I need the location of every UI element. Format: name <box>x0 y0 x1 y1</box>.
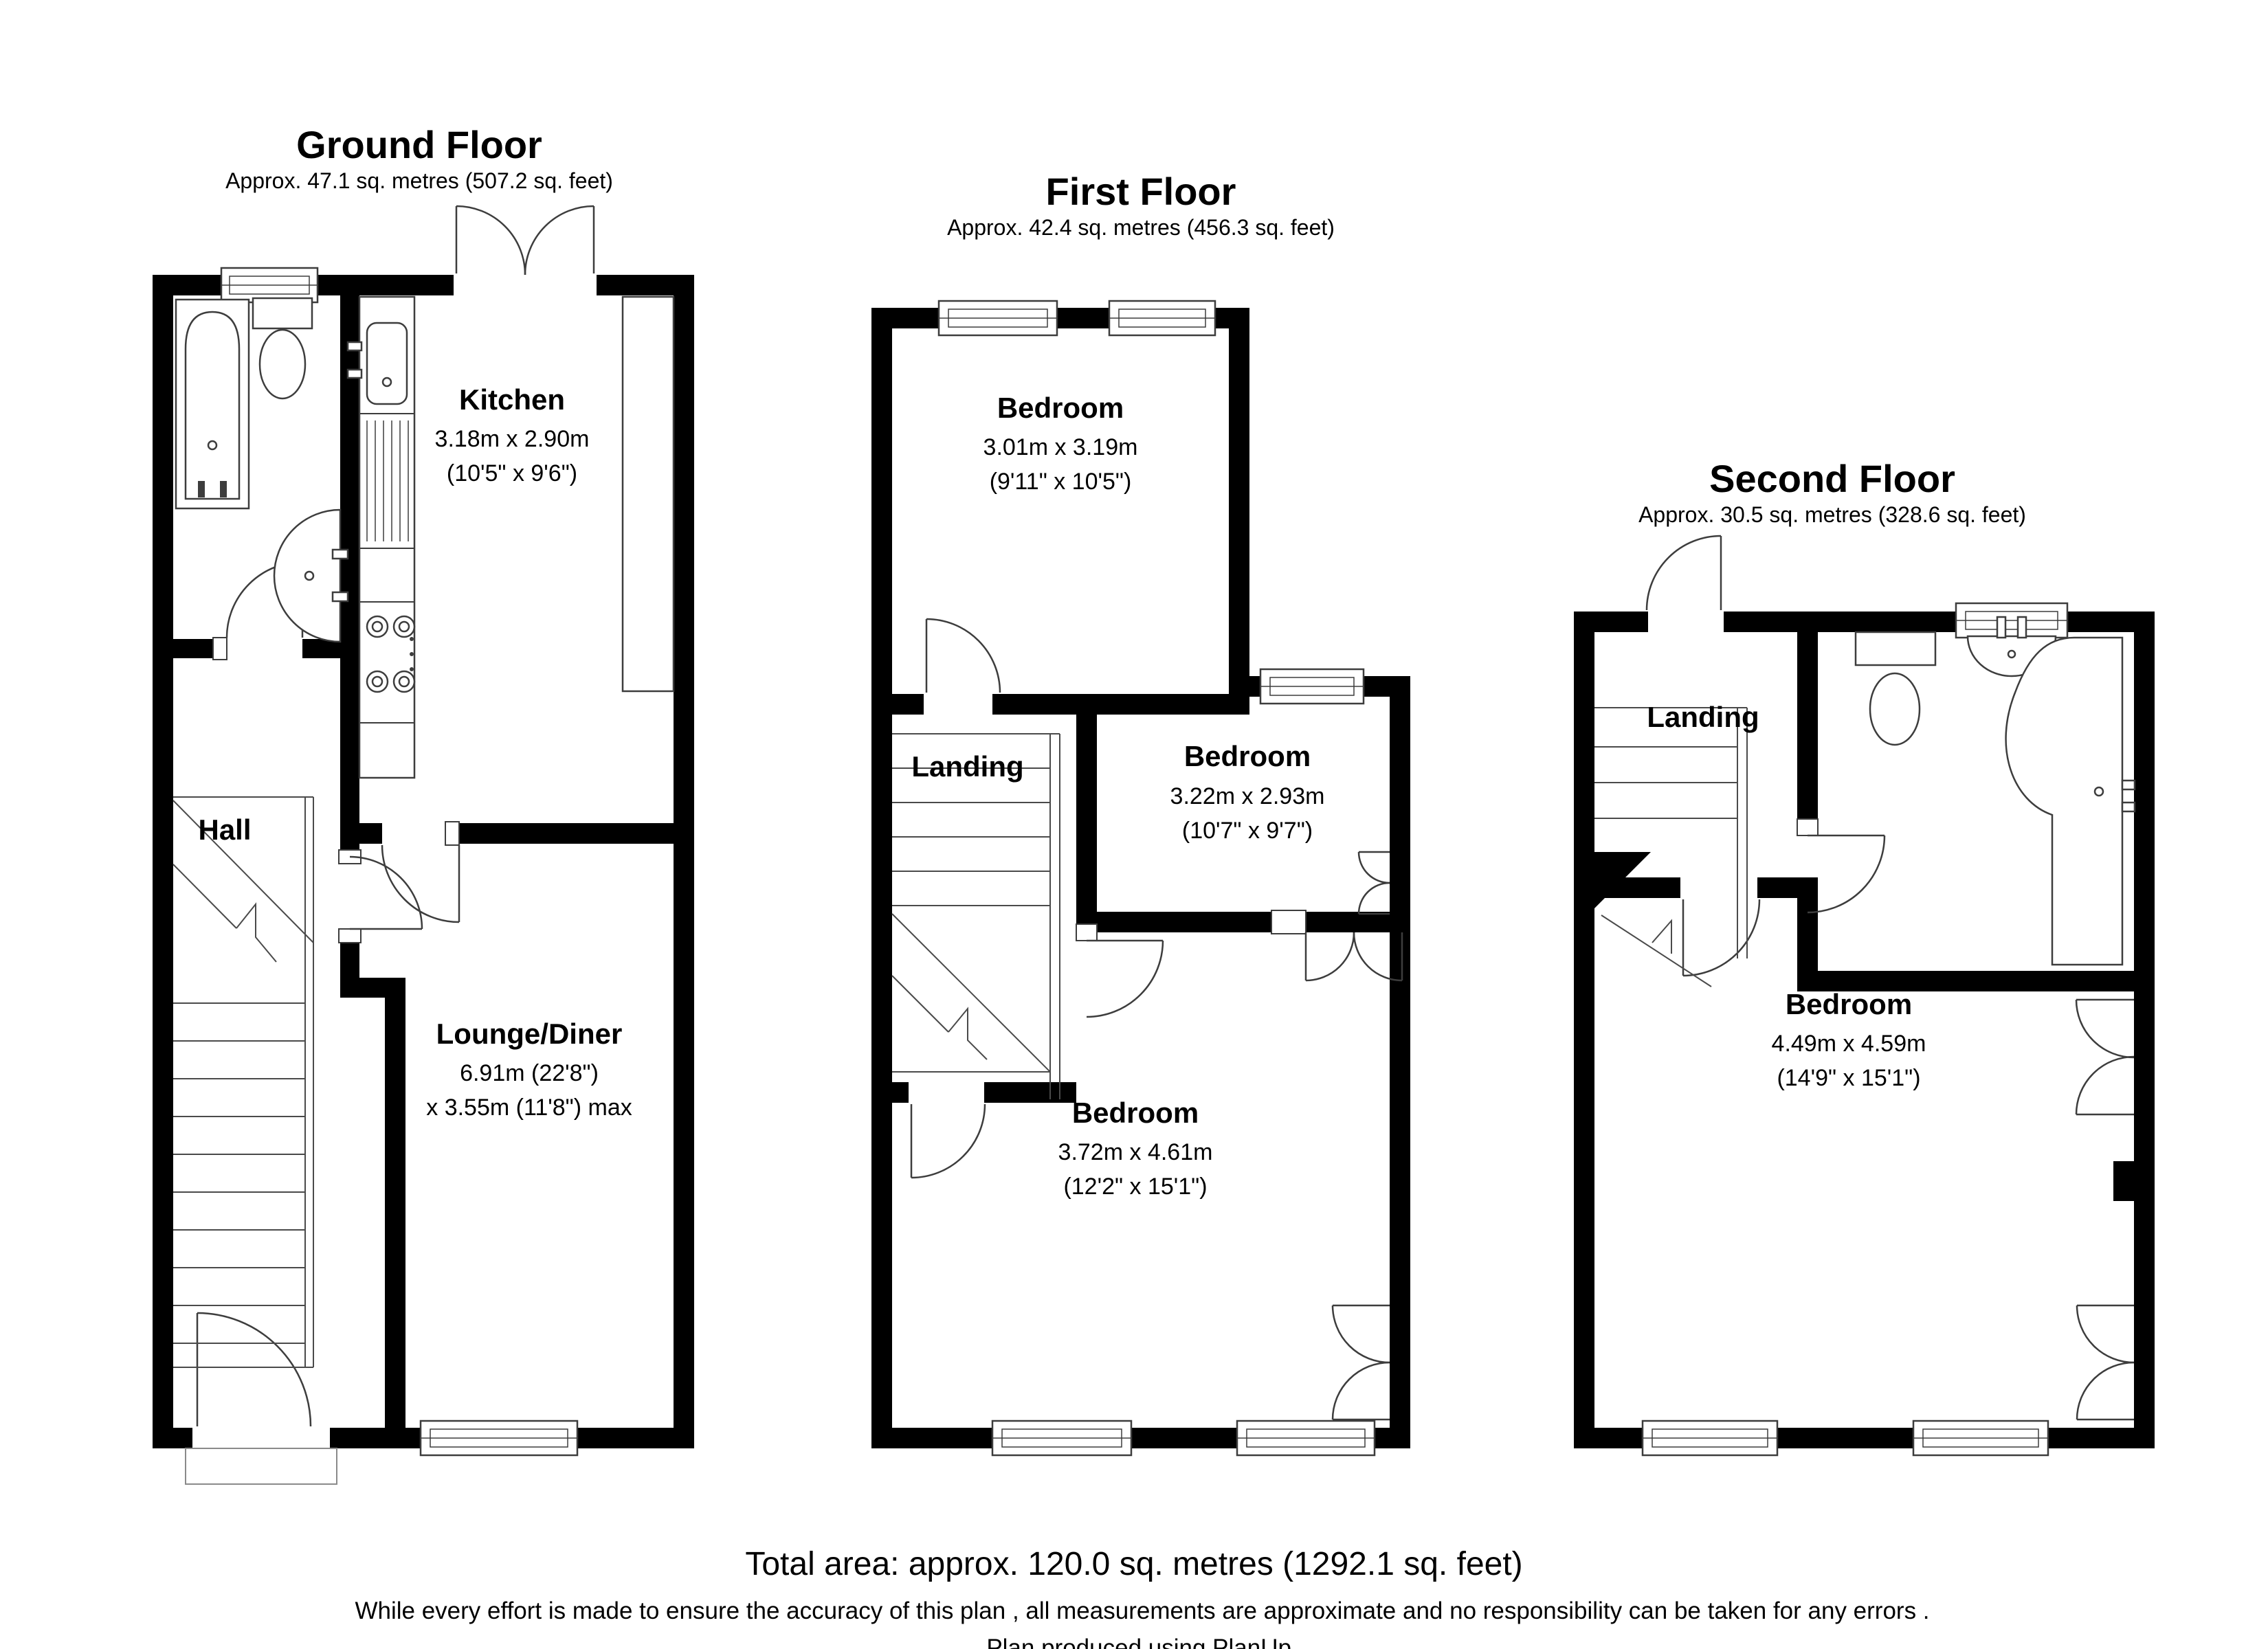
first-floor-staircase <box>892 734 1060 1099</box>
ground-floor-door-jambs <box>213 638 459 943</box>
lounge-window <box>421 1421 577 1455</box>
second-floor-bedroom-window-left <box>1643 1421 1777 1455</box>
front-bedroom-dims-imperial: (9'11" x 10'5") <box>990 469 1132 495</box>
second-floor-bedroom-label: Bedroom <box>1786 988 1912 1020</box>
floorplan-page: { "colors": { "wall": "#000000", "fixtur… <box>0 0 2268 1649</box>
middle-bedroom-label: Bedroom <box>1184 740 1311 772</box>
second-floor-bathroom-window <box>1956 603 2067 638</box>
middle-bedroom-dims-metric: 3.22m x 2.93m <box>1170 783 1325 809</box>
front-bedroom-window-right <box>1109 301 1215 335</box>
second-floor-bedroom-dims-imperial: (14'9" x 15'1") <box>1777 1065 1920 1091</box>
second-floor-bedroom-window-right <box>1913 1421 2048 1455</box>
second-floor-plan: Second Floor Approx. 30.5 sq. metres (32… <box>1574 457 2155 1455</box>
landing-entry-door <box>1647 536 1721 610</box>
p-shaped-bathtub <box>2006 638 2135 965</box>
kitchen-dims-metric: 3.18m x 2.90m <box>435 426 590 452</box>
second-floor-wardrobe-doors-upper <box>2076 1000 2134 1114</box>
first-floor-plan: First Floor Approx. 42.4 sq. metres (456… <box>871 170 1410 1455</box>
front-bedroom-door <box>926 619 1000 693</box>
rear-bedroom-door <box>911 1104 985 1178</box>
lounge-dims-imperial: x 3.55m (11'8") max <box>426 1095 632 1121</box>
first-floor-landing-label: Landing <box>911 750 1023 783</box>
second-floor-wall-openings <box>1648 610 1724 633</box>
rear-bedroom-window-left <box>992 1421 1131 1455</box>
pedestal-sink <box>274 510 348 642</box>
worktop <box>623 297 674 691</box>
hall-label: Hall <box>198 814 251 846</box>
front-bedroom-label: Bedroom <box>997 392 1124 424</box>
kitchen-label: Kitchen <box>459 383 565 416</box>
disclaimer-line1: While every effort is made to ensure the… <box>355 1597 1929 1624</box>
rear-bedroom-label: Bedroom <box>1072 1097 1199 1129</box>
ground-floor-staircase <box>173 797 313 1367</box>
bathroom-window <box>221 268 318 302</box>
first-floor-subtitle: Approx. 42.4 sq. metres (456.3 sq. feet) <box>947 215 1335 240</box>
total-area-text: Total area: approx. 120.0 sq. metres (12… <box>745 1546 1522 1582</box>
rear-bedroom-dims-imperial: (12'2" x 15'1") <box>1063 1174 1207 1200</box>
ground-floor-title: Ground Floor <box>296 123 542 166</box>
middle-bedroom-cupboard-doors <box>1359 852 1390 914</box>
kitchen-dims-imperial: (10'5" x 9'6") <box>447 460 577 486</box>
second-floor-landing-label: Landing <box>1647 701 1759 733</box>
middle-bedroom-dims-imperial: (10'7" x 9'7") <box>1182 818 1313 844</box>
first-floor-walls <box>871 308 1410 1448</box>
rear-bedroom-wardrobe-doors <box>1333 1305 1390 1420</box>
first-floor-title: First Floor <box>1046 170 1236 213</box>
middle-bedroom-window <box>1260 669 1364 704</box>
floorplan-canvas: Ground Floor Approx. 47.1 sq. metres (50… <box>0 0 2268 1649</box>
lounge-label: Lounge/Diner <box>436 1018 623 1050</box>
bathtub <box>176 300 249 508</box>
second-floor-bedroom-door <box>1683 899 1759 976</box>
front-bedroom-window-left <box>939 301 1057 335</box>
kitchen-lounge-door <box>382 845 459 922</box>
ground-floor-plan: Ground Floor Approx. 47.1 sq. metres (50… <box>153 123 694 1484</box>
second-floor-bedroom-dims-metric: 4.49m x 4.59m <box>1772 1031 1926 1057</box>
lounge-dims-metric: 6.91m (22'8") <box>460 1060 599 1086</box>
second-floor-staircase <box>1594 708 1747 987</box>
rear-bedroom-dims-metric: 3.72m x 4.61m <box>1058 1139 1213 1165</box>
middle-bedroom-door <box>1087 941 1163 1017</box>
french-doors <box>456 206 594 275</box>
disclaimer-line2: Plan produced using PlanUp. <box>986 1635 1298 1649</box>
rear-bedroom-window-right <box>1237 1421 1375 1455</box>
second-floor-toilet <box>1856 632 1935 745</box>
second-floor-bathroom-door <box>1808 835 1885 912</box>
ground-floor-subtitle: Approx. 47.1 sq. metres (507.2 sq. feet) <box>225 168 613 193</box>
front-bedroom-dims-metric: 3.01m x 3.19m <box>983 434 1138 460</box>
footer: Total area: approx. 120.0 sq. metres (12… <box>355 1546 1929 1649</box>
second-floor-title: Second Floor <box>1709 457 1955 500</box>
middle-bedroom-wardrobe-doors <box>1306 932 1402 980</box>
second-floor-door-jambs <box>1797 819 1818 835</box>
second-floor-subtitle: Approx. 30.5 sq. metres (328.6 sq. feet) <box>1638 502 2026 527</box>
second-floor-wardrobe-doors-lower <box>2077 1305 2134 1420</box>
toilet <box>253 298 312 399</box>
